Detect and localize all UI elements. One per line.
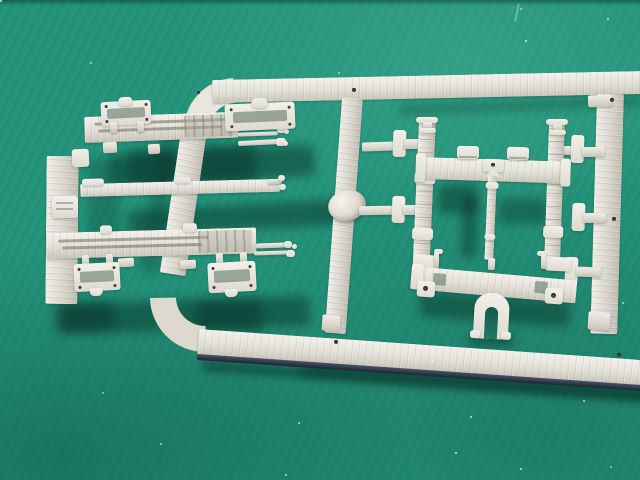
pin-mark bbox=[334, 340, 338, 344]
rod-fork-end bbox=[286, 250, 295, 257]
mat-scratch bbox=[514, 3, 520, 22]
underframe-bottom-beam bbox=[46, 228, 257, 259]
arch-foot bbox=[501, 332, 511, 341]
post-collar bbox=[412, 227, 434, 240]
platform-frame bbox=[73, 262, 120, 292]
platform-bottom-tab bbox=[90, 288, 103, 297]
bolster-right-post bbox=[544, 122, 565, 268]
pad-with-hole bbox=[416, 280, 435, 297]
shadow bbox=[498, 198, 548, 224]
under-beam-tab bbox=[103, 142, 118, 154]
platform-frame bbox=[100, 100, 151, 127]
board-box-detail bbox=[52, 196, 78, 218]
under-beam-tab bbox=[180, 260, 196, 270]
beam-end-tab bbox=[560, 158, 571, 186]
platform-center-boss bbox=[251, 98, 267, 109]
platform-stem bbox=[110, 122, 118, 133]
shadow bbox=[62, 303, 114, 330]
pad-with-hole bbox=[544, 287, 563, 304]
under-beam-tab bbox=[148, 144, 161, 155]
beam-end-tab bbox=[415, 153, 426, 182]
arch-foot bbox=[470, 330, 480, 339]
runner-fillet bbox=[587, 311, 610, 330]
rod-fork-end bbox=[278, 175, 285, 181]
hook-part bbox=[434, 252, 439, 267]
platform-center-boss bbox=[118, 97, 132, 107]
sprue-bottom-rail bbox=[197, 329, 640, 387]
runner-fillet bbox=[588, 95, 612, 108]
platform-frame bbox=[207, 261, 257, 293]
board-top-step bbox=[72, 149, 90, 168]
arch-cutout bbox=[484, 307, 499, 340]
rod-knob bbox=[292, 244, 297, 249]
bracket-arm bbox=[359, 206, 395, 216]
photo-model-sprue-on-cutting-mat bbox=[0, 0, 640, 480]
shadow bbox=[461, 196, 478, 258]
under-beam-tab bbox=[118, 258, 134, 268]
bolster-brake-rod bbox=[484, 176, 497, 260]
rod-stem bbox=[488, 258, 496, 270]
platform-stem bbox=[137, 121, 145, 132]
bracket-arm bbox=[582, 147, 605, 157]
clip-part bbox=[507, 147, 529, 161]
brake-rod bbox=[254, 250, 288, 255]
runner-fillet bbox=[321, 314, 340, 331]
rod-collar bbox=[484, 234, 495, 240]
clip-part bbox=[457, 146, 479, 159]
rod-collar bbox=[485, 182, 498, 190]
post-collar bbox=[543, 226, 563, 239]
post-foot bbox=[545, 256, 572, 271]
rod-fork-end bbox=[284, 241, 292, 248]
beam-top-tab bbox=[183, 223, 197, 232]
rod-knob bbox=[284, 129, 289, 134]
bracket-arm bbox=[362, 141, 396, 151]
pin-mark bbox=[612, 217, 616, 221]
beam-groove bbox=[58, 236, 208, 243]
platform-frame bbox=[224, 101, 295, 131]
pin-mark bbox=[610, 98, 614, 102]
rod-fork-end bbox=[279, 184, 286, 190]
beam-top-tab bbox=[100, 225, 112, 233]
beam-end-block bbox=[198, 230, 253, 253]
arch-part bbox=[473, 292, 510, 340]
beam-top-tab bbox=[82, 178, 104, 186]
pin-mark bbox=[617, 353, 621, 357]
beam-top-tab bbox=[175, 177, 191, 183]
pin-mark bbox=[197, 91, 200, 94]
bracket-arm bbox=[576, 267, 601, 278]
dust-specks bbox=[0, 0, 2, 2]
pin-mark bbox=[352, 88, 356, 92]
beam-groove bbox=[62, 243, 202, 250]
brake-rod bbox=[256, 242, 286, 248]
bracket-arm bbox=[583, 213, 606, 223]
hook-part bbox=[541, 254, 546, 269]
rod-knob bbox=[283, 141, 288, 146]
